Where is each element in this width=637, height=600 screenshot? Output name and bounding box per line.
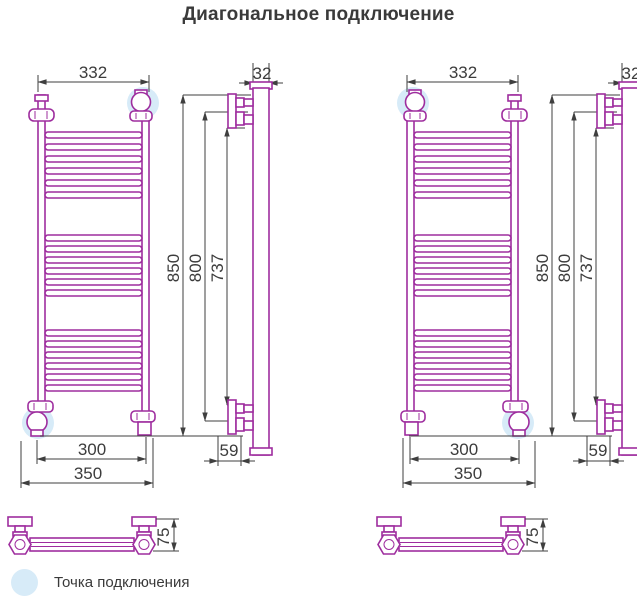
front-view (21, 75, 159, 488)
legend: Точка подключения (11, 569, 189, 596)
dim-label-mounting-height: 800 (186, 254, 205, 282)
drawing-right-variant: 332 300 350 850 800 737 32 59 75 (377, 63, 637, 554)
dim-label-overall-width: 350 (74, 464, 102, 483)
dim-label-wall-offset: 59 (220, 441, 239, 460)
connection-point-marker (11, 569, 38, 596)
dim-label-inner-height: 737 (577, 254, 596, 282)
dim-label-overall-height: 850 (164, 254, 183, 282)
dim-label-depth: 75 (154, 528, 173, 547)
side-view (40, 63, 283, 466)
dim-label-pipe-diameter: 32 (622, 64, 637, 83)
drawing-left-variant: 332 300 350 850 800 737 32 59 75 (8, 63, 283, 554)
dim-label-depth: 75 (523, 528, 542, 547)
dim-label-mounting-height: 800 (555, 254, 574, 282)
dim-label-inner-height: 737 (208, 254, 227, 282)
dim-label-pipe-diameter: 32 (253, 64, 272, 83)
dim-label-overall-width: 350 (454, 464, 482, 483)
dim-label-overall-height: 850 (533, 254, 552, 282)
dim-label-wall-offset: 59 (589, 441, 608, 460)
dim-label-top-width: 332 (79, 63, 107, 82)
front-view (397, 75, 535, 488)
dim-label-pitch-width: 300 (450, 440, 478, 459)
dim-label-top-width: 332 (449, 63, 477, 82)
technical-drawing-canvas: 332 300 350 850 800 737 32 59 75 332 300… (0, 0, 637, 600)
legend-label: Точка подключения (54, 574, 189, 591)
dim-label-pitch-width: 300 (78, 440, 106, 459)
